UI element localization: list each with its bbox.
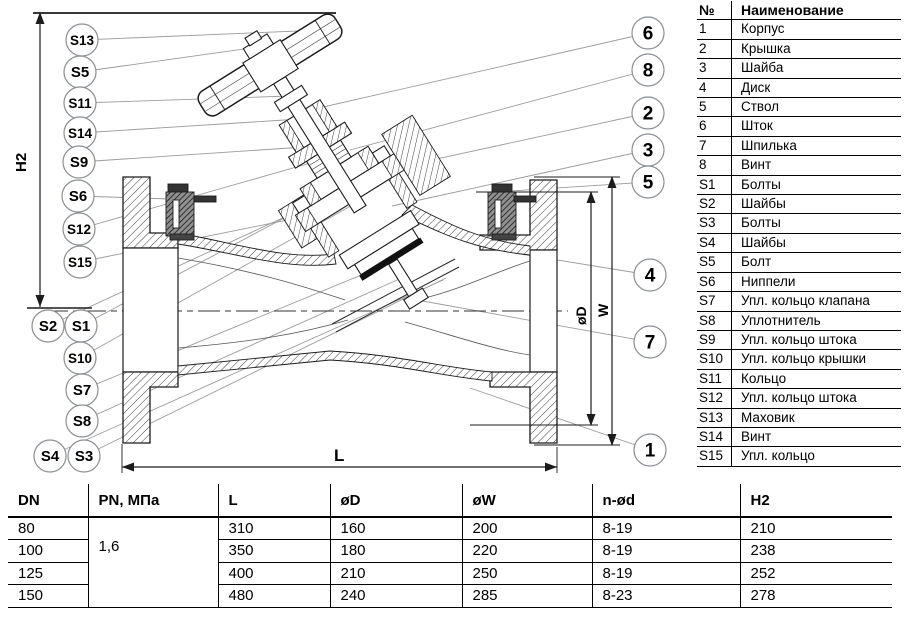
callout-label-3: 3 <box>643 141 654 162</box>
callout-S11: S11 <box>64 87 96 119</box>
leader-line-1 <box>470 388 650 450</box>
parts-table-row: S13Маховик <box>697 408 901 427</box>
dims-header-cell: H2 <box>740 484 892 517</box>
ow-cell: 220 <box>462 540 592 563</box>
leader-line-S9 <box>79 146 320 162</box>
callout-label-1: 1 <box>645 441 656 462</box>
parts-table-row: 5Ствол <box>697 98 901 117</box>
part-name-cell: Упл. кольцо штока <box>732 389 902 408</box>
callout-label-S13: S13 <box>70 33 95 48</box>
parts-table-header-row: №Наименование <box>697 1 901 20</box>
parts-table-row: 8Винт <box>697 156 901 175</box>
valve-datasheet-page: H2 L øD W S13S5S11S14S9S6S12S15S2S1S10S7… <box>0 0 905 624</box>
callout-S14: S14 <box>64 117 96 149</box>
valve-cross-section-drawing: H2 L øD W S13S5S11S14S9S6S12S15S2S1S10S7… <box>0 0 695 485</box>
part-name-cell: Болт <box>732 253 902 272</box>
part-name-cell: Болты <box>732 175 902 194</box>
dims-header-cell: n-ød <box>592 484 740 517</box>
callout-label-7: 7 <box>645 333 656 354</box>
callout-label-S10: S10 <box>68 351 92 366</box>
callout-3: 3 <box>632 134 664 166</box>
callout-label-S15: S15 <box>68 255 93 270</box>
dims-header-cell: øW <box>462 484 592 517</box>
part-number-cell: S14 <box>697 427 732 446</box>
callout-label-S4: S4 <box>41 448 60 465</box>
callout-label-S7: S7 <box>73 382 91 399</box>
callout-label-6: 6 <box>643 24 654 45</box>
parts-table-row: S6Ниппели <box>697 272 901 291</box>
part-number-cell: 3 <box>697 59 732 78</box>
dim-label-h2: H2 <box>13 153 30 172</box>
parts-table-row: 7Шпилька <box>697 136 901 155</box>
leader-line-5 <box>496 182 648 192</box>
parts-table: №Наименование1Корпус2Крышка3Шайба4Диск5С… <box>697 1 901 467</box>
parts-table-row: S15Упл. кольцо <box>697 447 901 466</box>
nod-cell: 8-19 <box>592 517 740 540</box>
ow-cell: 285 <box>462 585 592 608</box>
parts-table-row: S11Кольцо <box>697 369 901 388</box>
part-name-cell: Крышка <box>732 39 902 58</box>
parts-table-row: 4Диск <box>697 78 901 97</box>
callout-S4: S4 <box>34 440 66 472</box>
bonnet-stem-assembly <box>183 0 499 346</box>
callout-S9: S9 <box>63 146 95 178</box>
part-number-cell: S3 <box>697 214 732 233</box>
parts-table-row: S2Шайбы <box>697 195 901 214</box>
part-number-cell: S11 <box>697 369 732 388</box>
callout-S5: S5 <box>64 56 96 88</box>
parts-table-row: S12Упл. кольцо штока <box>697 389 901 408</box>
od-cell: 160 <box>330 517 462 540</box>
parts-table-row: 6Шток <box>697 117 901 136</box>
part-name-cell: Корпус <box>732 20 902 39</box>
parts-table-row: S10Упл. кольцо крышки <box>697 350 901 369</box>
parts-table-row: S14Винт <box>697 427 901 446</box>
dims-header-cell: øD <box>330 484 462 517</box>
parts-table-row: S9Упл. кольцо штока <box>697 330 901 349</box>
callout-S12: S12 <box>63 213 95 245</box>
dn-cell: 100 <box>8 540 88 563</box>
part-name-cell: Ниппели <box>732 272 902 291</box>
leader-line-6 <box>310 33 648 110</box>
callout-4: 4 <box>634 259 666 291</box>
part-name-cell: Упл. кольцо крышки <box>732 350 902 369</box>
part-number-cell: S1 <box>697 175 732 194</box>
dims-header-cell: L <box>218 484 330 517</box>
callout-label-S2: S2 <box>39 318 57 335</box>
callout-S13: S13 <box>66 24 98 56</box>
part-number-cell: 4 <box>697 78 732 97</box>
part-number-cell: S9 <box>697 330 732 349</box>
callout-S6: S6 <box>62 180 94 212</box>
leader-line-S5 <box>80 47 258 72</box>
part-number-cell: S8 <box>697 311 732 330</box>
parts-table-row: 3Шайба <box>697 59 901 78</box>
callout-label-8: 8 <box>643 61 654 82</box>
ow-cell: 250 <box>462 562 592 585</box>
dimensions-table: DNPN, МПаLøDøWn-ødH2 801,63101602008-192… <box>8 484 892 608</box>
callout-label-S6: S6 <box>69 188 87 205</box>
part-name-cell: Упл. кольцо штока <box>732 330 902 349</box>
part-name-cell: Шайбы <box>732 195 902 214</box>
callout-S15: S15 <box>64 246 96 278</box>
part-name-cell: Шайбы <box>732 233 902 252</box>
part-number-cell: S6 <box>697 272 732 291</box>
parts-header-name: Наименование <box>732 1 902 20</box>
part-number-cell: 7 <box>697 136 732 155</box>
callout-S10: S10 <box>64 342 96 374</box>
part-name-cell: Шпилька <box>732 136 902 155</box>
part-number-cell: S13 <box>697 408 732 427</box>
part-name-cell: Винт <box>732 156 902 175</box>
nod-cell: 8-23 <box>592 585 740 608</box>
parts-table-row: S7Упл. кольцо клапана <box>697 292 901 311</box>
h2-cell: 278 <box>740 585 892 608</box>
part-number-cell: 1 <box>697 20 732 39</box>
parts-table-row: S5Болт <box>697 253 901 272</box>
callout-label-S1: S1 <box>72 318 90 335</box>
callout-6: 6 <box>632 17 664 49</box>
nod-cell: 8-19 <box>592 562 740 585</box>
part-name-cell: Упл. кольцо клапана <box>732 292 902 311</box>
callout-label-4: 4 <box>645 266 656 287</box>
leader-line-4 <box>508 252 650 275</box>
callout-2: 2 <box>632 97 664 129</box>
pn-merged-cell: 1,6 <box>88 517 218 607</box>
part-number-cell: 8 <box>697 156 732 175</box>
callout-label-S3: S3 <box>75 448 93 465</box>
dn-cell: 150 <box>8 585 88 608</box>
callout-label-2: 2 <box>643 104 654 125</box>
part-name-cell: Шток <box>732 117 902 136</box>
callout-label-S8: S8 <box>73 413 91 430</box>
callout-label-S9: S9 <box>70 154 88 171</box>
callout-S7: S7 <box>66 374 98 406</box>
part-name-cell: Ствол <box>732 98 902 117</box>
part-number-cell: S7 <box>697 292 732 311</box>
callout-label-S11: S11 <box>68 96 92 111</box>
l-cell: 400 <box>218 562 330 585</box>
parts-table-row: 2Крышка <box>697 39 901 58</box>
dim-label-l: L <box>334 446 344 465</box>
dim-label-w: W <box>595 303 611 317</box>
l-cell: 310 <box>218 517 330 540</box>
dn-cell: 80 <box>8 517 88 540</box>
dn-cell: 125 <box>8 562 88 585</box>
part-number-cell: S2 <box>697 195 732 214</box>
part-number-cell: S12 <box>697 389 732 408</box>
parts-header-number: № <box>697 1 732 20</box>
od-cell: 180 <box>330 540 462 563</box>
callout-7: 7 <box>634 326 666 358</box>
part-number-cell: S10 <box>697 350 732 369</box>
callout-label-S12: S12 <box>67 222 91 237</box>
nod-cell: 8-19 <box>592 540 740 563</box>
h2-cell: 252 <box>740 562 892 585</box>
part-name-cell: Шайба <box>732 59 902 78</box>
callout-label-S5: S5 <box>71 64 89 81</box>
parts-table-row: S1Болты <box>697 175 901 194</box>
h2-cell: 210 <box>740 517 892 540</box>
callout-S3: S3 <box>68 440 100 472</box>
parts-table-row: 1Корпус <box>697 20 901 39</box>
callout-5: 5 <box>632 166 664 198</box>
part-name-cell: Маховик <box>732 408 902 427</box>
od-cell: 210 <box>330 562 462 585</box>
callout-S2: S2 <box>32 310 64 342</box>
parts-table-row: S8Уплотнитель <box>697 311 901 330</box>
bore-lines <box>178 258 530 355</box>
dims-header-cell: DN <box>8 484 88 517</box>
h2-cell: 238 <box>740 540 892 563</box>
part-name-cell: Диск <box>732 78 902 97</box>
parts-table-row: S3Болты <box>697 214 901 233</box>
parts-table-row: S4Шайбы <box>697 233 901 252</box>
dims-table-row: 801,63101602008-19210 <box>8 517 892 540</box>
callout-S1: S1 <box>65 310 97 342</box>
dim-label-od: øD <box>573 306 589 325</box>
part-name-cell: Кольцо <box>732 369 902 388</box>
stud <box>389 259 418 297</box>
part-number-cell: S15 <box>697 447 732 466</box>
callout-label-S14: S14 <box>68 126 93 141</box>
callout-S8: S8 <box>66 405 98 437</box>
part-number-cell: S4 <box>697 233 732 252</box>
ow-cell: 200 <box>462 517 592 540</box>
callout-1: 1 <box>634 434 666 466</box>
part-name-cell: Винт <box>732 427 902 446</box>
od-cell: 240 <box>330 585 462 608</box>
callout-label-5: 5 <box>643 173 654 194</box>
l-cell: 480 <box>218 585 330 608</box>
leader-line-S14 <box>80 119 300 133</box>
body-bottom-wall <box>178 351 492 381</box>
dims-header-cell: PN, МПа <box>88 484 218 517</box>
part-name-cell: Упл. кольцо <box>732 447 902 466</box>
part-number-cell: S5 <box>697 253 732 272</box>
part-number-cell: 2 <box>697 39 732 58</box>
callout-8: 8 <box>632 54 664 86</box>
part-number-cell: 5 <box>697 98 732 117</box>
leader-line-S11 <box>80 96 290 103</box>
part-name-cell: Болты <box>732 214 902 233</box>
part-name-cell: Уплотнитель <box>732 311 902 330</box>
part-number-cell: 6 <box>697 117 732 136</box>
l-cell: 350 <box>218 540 330 563</box>
